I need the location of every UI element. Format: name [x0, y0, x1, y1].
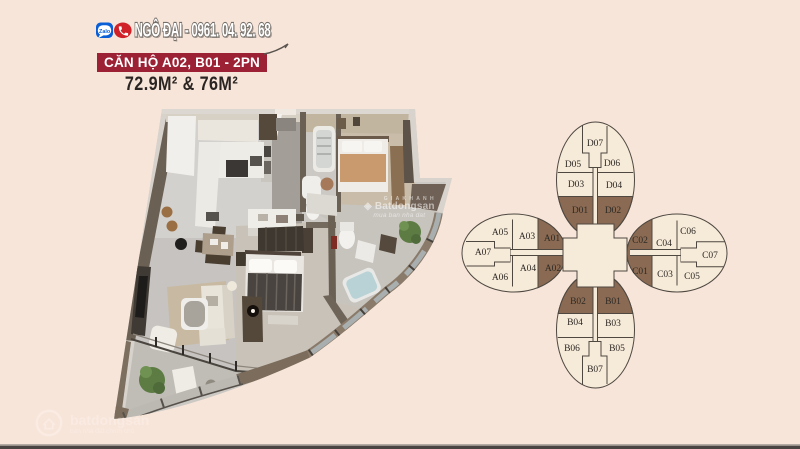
svg-text:D06: D06	[604, 159, 621, 169]
svg-text:D01: D01	[572, 206, 589, 216]
svg-text:A06: A06	[492, 273, 509, 283]
svg-text:A03: A03	[519, 232, 536, 242]
svg-text:A05: A05	[492, 228, 509, 238]
svg-text:B01: B01	[605, 297, 621, 307]
svg-text:B02: B02	[570, 297, 586, 307]
svg-text:C04: C04	[656, 239, 672, 249]
svg-text:A02: A02	[545, 264, 562, 274]
svg-text:B07: B07	[587, 365, 603, 375]
svg-text:D07: D07	[587, 139, 604, 149]
svg-text:C03: C03	[657, 270, 673, 280]
svg-text:B03: B03	[605, 319, 621, 329]
svg-text:D03: D03	[568, 180, 585, 190]
svg-text:B05: B05	[609, 344, 625, 354]
svg-text:C05: C05	[684, 272, 700, 282]
svg-text:C02: C02	[632, 236, 648, 246]
svg-text:B06: B06	[564, 344, 580, 354]
svg-text:D04: D04	[606, 181, 623, 191]
svg-text:C07: C07	[702, 251, 718, 261]
svg-text:A01: A01	[544, 234, 561, 244]
svg-text:D02: D02	[605, 206, 622, 216]
svg-text:C06: C06	[680, 227, 696, 237]
svg-text:C01: C01	[632, 267, 648, 277]
svg-text:A04: A04	[520, 264, 537, 274]
svg-text:D05: D05	[565, 160, 582, 170]
svg-text:B04: B04	[567, 318, 583, 328]
svg-text:A07: A07	[475, 248, 492, 258]
